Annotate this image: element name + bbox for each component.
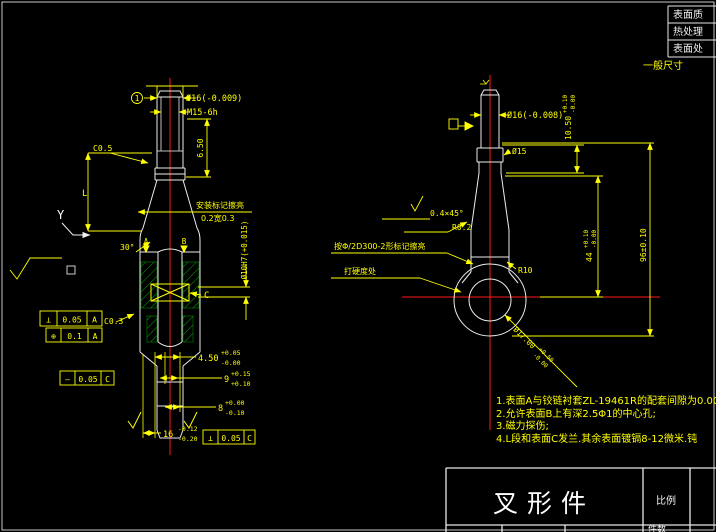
hole-dia-label: Ø10H7(+0.015) bbox=[240, 221, 249, 280]
dim-9-up: +0.15 bbox=[231, 370, 251, 378]
info-row-3: 表面处 bbox=[673, 42, 703, 55]
dim-10.50-up: +0.10 bbox=[562, 95, 569, 113]
qty-label: 件数 bbox=[648, 523, 666, 532]
view-y-label: Y bbox=[57, 208, 65, 222]
dim-4.50: 4.50 bbox=[198, 354, 218, 364]
dim-10.50-dn: -0.00 bbox=[570, 95, 577, 113]
dim-4.50-up: +0.05 bbox=[221, 349, 241, 357]
fcf2-symbol: ⊕ bbox=[51, 332, 56, 341]
dim-10.50: 10.50 bbox=[564, 116, 573, 140]
radius-r10: R10 bbox=[518, 266, 533, 275]
thread-label: M15-6h bbox=[187, 108, 218, 118]
fcf1-symbol: ⊥ bbox=[46, 316, 51, 325]
dia17-label: Ø17.00 bbox=[512, 325, 538, 351]
dim-4.50-dn: -0.00 bbox=[221, 359, 241, 367]
right-view: Ø16(-0.008) Ø15 10.50 +0.10 -0.00 0.4×45… bbox=[331, 75, 660, 430]
fcf1-datum: A bbox=[92, 316, 97, 325]
chamfer-c0.3: C0.3 bbox=[104, 317, 123, 326]
dia15-label: Ø15 bbox=[512, 146, 527, 156]
cad-canvas: 表面质 热处理 表面处 一般尺寸 1.表面A与铰链衬套ZL-19461R的配套间… bbox=[0, 0, 716, 532]
right-view-dimensions bbox=[331, 80, 654, 387]
dim-8-up: +0.00 bbox=[225, 399, 245, 407]
left-view: 1 Ø16(-0.009) M15-6h 6.50 C0.5 L 安装标记擦亮 … bbox=[10, 78, 255, 455]
note-4: 4.L段和表面C发兰.其余表面镀镉8-12微米.钝 bbox=[496, 432, 697, 445]
part-name: 叉形件 bbox=[493, 489, 595, 518]
scale-label: 比例 bbox=[656, 494, 676, 507]
datum-b-label: B bbox=[182, 237, 187, 246]
dim-44-up: +0.10 bbox=[583, 230, 590, 248]
fcf3-datum: C bbox=[105, 375, 110, 384]
hardness-test-label: 打硬度处 bbox=[344, 266, 376, 276]
fcf2-value: 0.1 bbox=[67, 332, 82, 341]
fcf3-symbol: — bbox=[65, 375, 70, 384]
datum-c-label: C bbox=[204, 291, 209, 301]
general-dimension-note: 一般尺寸 bbox=[643, 59, 683, 72]
fcf4-datum: C bbox=[247, 434, 252, 443]
dim-44: 44 bbox=[585, 252, 594, 262]
dia16-label: Ø16(-0.008) bbox=[507, 110, 563, 121]
chamfer-0.4x45: 0.4×45° bbox=[430, 209, 464, 218]
dim-44-dn: -0.00 bbox=[591, 230, 598, 248]
dia16-label: Ø16(-0.009) bbox=[186, 93, 242, 104]
leader-mark-line1: 安装标记擦亮 bbox=[196, 200, 244, 210]
sheet-border bbox=[2, 2, 714, 530]
dim-6.50: 6.50 bbox=[196, 138, 205, 157]
dim-L: L bbox=[82, 189, 87, 199]
angle-30: 30° bbox=[120, 243, 134, 252]
dim-96: 96±0.10 bbox=[639, 228, 648, 262]
fcf4-value: 0.05 bbox=[221, 434, 240, 443]
info-row-2: 热处理 bbox=[673, 25, 703, 38]
info-row-1: 表面质 bbox=[673, 8, 703, 21]
balloon-1: 1 bbox=[135, 94, 140, 103]
chamfer-c0.5: C0.5 bbox=[93, 144, 112, 153]
fcf2-datum: A bbox=[93, 332, 98, 341]
fcf1-value: 0.05 bbox=[62, 316, 81, 325]
view-y-arrow bbox=[62, 223, 90, 235]
dim-16: 16 bbox=[163, 430, 173, 440]
dim-9: 9 bbox=[224, 375, 229, 385]
note-3: 3.磁力探伤; bbox=[496, 419, 549, 432]
dim-8: 8 bbox=[218, 404, 223, 414]
cad-drawing-window: 表面质 热处理 表面处 一般尺寸 1.表面A与铰链衬套ZL-19461R的配套间… bbox=[0, 0, 716, 532]
datum-a-label: A bbox=[144, 237, 149, 246]
dim-9-dn: +0.10 bbox=[231, 380, 251, 388]
mark-polish-leader: 按Φ/2D300-2形标记擦亮 bbox=[334, 241, 426, 251]
technical-notes: 1.表面A与铰链衬套ZL-19461R的配套间隙为0.00 2.允许表面B上有深… bbox=[496, 394, 716, 445]
dim-8-dn: -0.10 bbox=[225, 409, 245, 417]
title-block: 叉形件 比例 件数 bbox=[446, 468, 716, 532]
fcf3-value: 0.05 bbox=[78, 375, 97, 384]
leader-mark-line2: 0.2宽0.3 bbox=[201, 213, 234, 223]
note-1: 1.表面A与铰链衬套ZL-19461R的配套间隙为0.00 bbox=[496, 394, 716, 407]
fcf4-symbol: ⊥ bbox=[208, 434, 213, 443]
left-view-dimensions bbox=[10, 86, 252, 438]
note-2: 2.允许表面B上有深2.5Φ1的中心孔; bbox=[496, 407, 656, 420]
dim-16-dn: -0.20 bbox=[178, 435, 198, 443]
radius-r0.2: R0.2 bbox=[452, 223, 471, 232]
